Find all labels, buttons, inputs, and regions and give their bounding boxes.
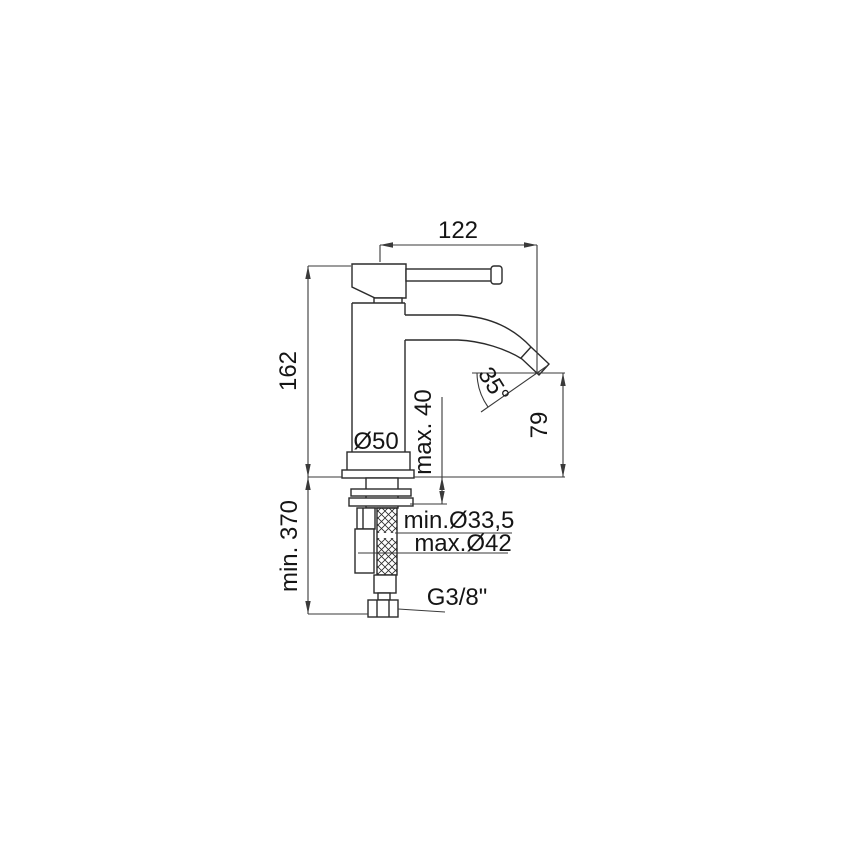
label-spout-reach: 122 (438, 217, 478, 244)
under-counter-assembly (349, 478, 413, 617)
hose-ferrule (374, 575, 396, 593)
dimension-deck-thickness: max. 40 (410, 389, 447, 504)
mounting-nut-plate (349, 498, 413, 506)
flex-hose-braid-upper (377, 508, 397, 533)
faucet-dimension-diagram: 122 162 min. 370 Ø50 max. 40 79 35° (0, 0, 868, 868)
handle-block (352, 264, 406, 298)
lever-arm (406, 269, 494, 281)
label-outlet-height: 79 (526, 412, 553, 439)
label-body-height: 162 (275, 351, 302, 391)
spout (405, 315, 549, 375)
label-deck-thickness: max. 40 (410, 389, 437, 474)
label-base-diameter: Ø50 (353, 428, 398, 455)
label-connection-thread: G3/8" (427, 584, 488, 611)
base-flange (342, 470, 414, 478)
label-outlet-angle: 35° (472, 362, 514, 407)
label-hole-max: max.Ø42 (414, 530, 511, 557)
technical-drawing-page: 122 162 min. 370 Ø50 max. 40 79 35° (0, 0, 868, 868)
lever-end-cap (491, 266, 502, 284)
hose-neck (378, 593, 390, 600)
annotation-connection-thread: G3/8" (398, 584, 487, 612)
dimension-body-height: 162 (275, 266, 351, 477)
connection-nut (368, 600, 398, 617)
stud-long-nut (355, 529, 374, 573)
flex-hose-braid-lower (377, 538, 397, 575)
mounting-stud (357, 508, 375, 529)
washer-upper (351, 489, 411, 496)
label-hose-length: min. 370 (276, 500, 303, 592)
